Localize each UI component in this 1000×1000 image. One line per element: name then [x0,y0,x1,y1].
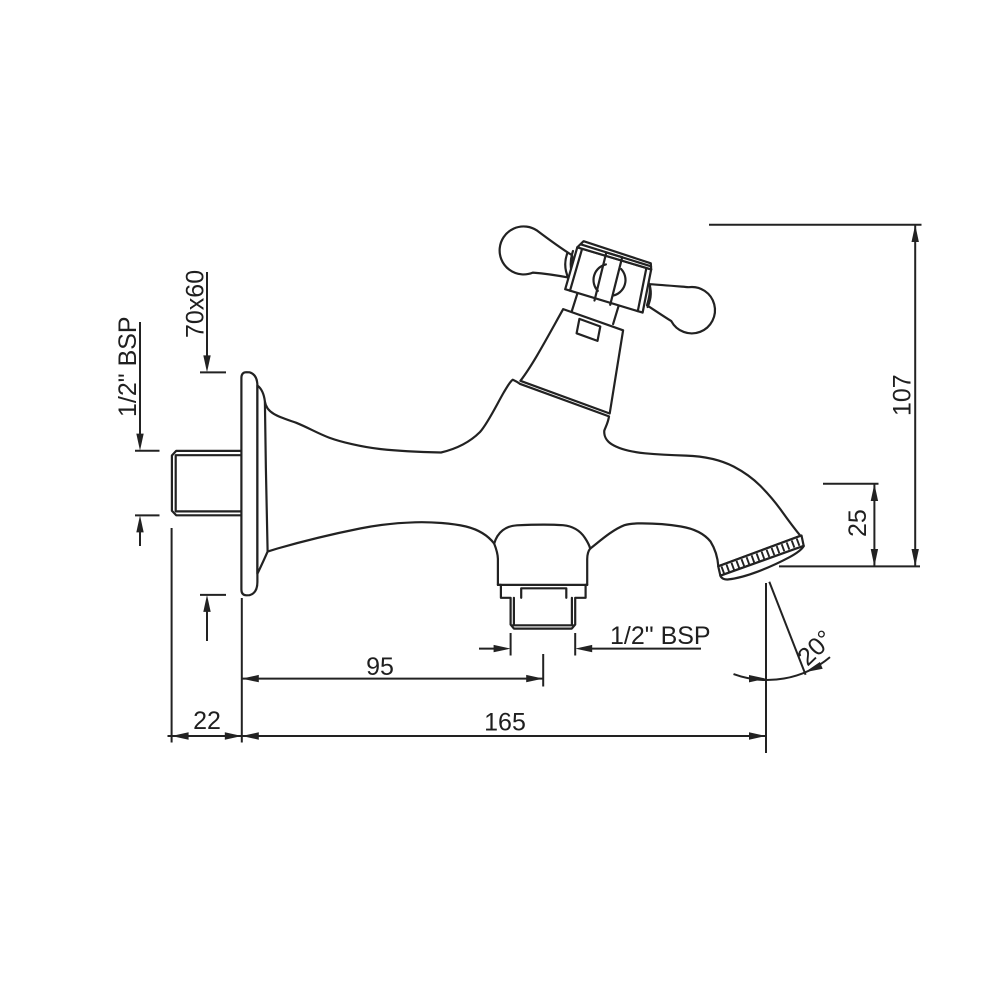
svg-text:107: 107 [889,374,917,416]
svg-text:165: 165 [484,709,526,737]
svg-text:1/2" BSP: 1/2" BSP [610,622,711,650]
svg-text:95: 95 [366,653,394,681]
svg-text:70x60: 70x60 [182,270,210,338]
svg-text:25: 25 [844,509,872,537]
svg-text:1/2" BSP: 1/2" BSP [114,316,142,417]
svg-text:20°: 20° [792,625,839,671]
svg-text:22: 22 [193,707,221,735]
